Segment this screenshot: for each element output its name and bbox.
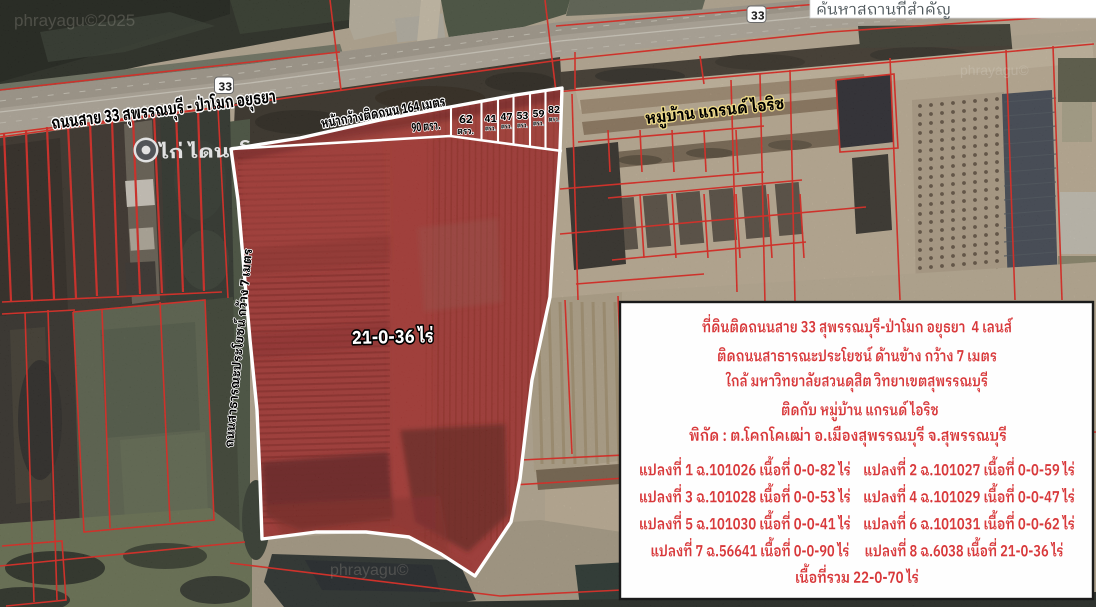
svg-text:phrayagu©2025: phrayagu©2025 bbox=[14, 11, 135, 30]
svg-text:phrayagu©: phrayagu© bbox=[960, 62, 1029, 78]
svg-text:phrayagu©: phrayagu© bbox=[330, 562, 409, 579]
